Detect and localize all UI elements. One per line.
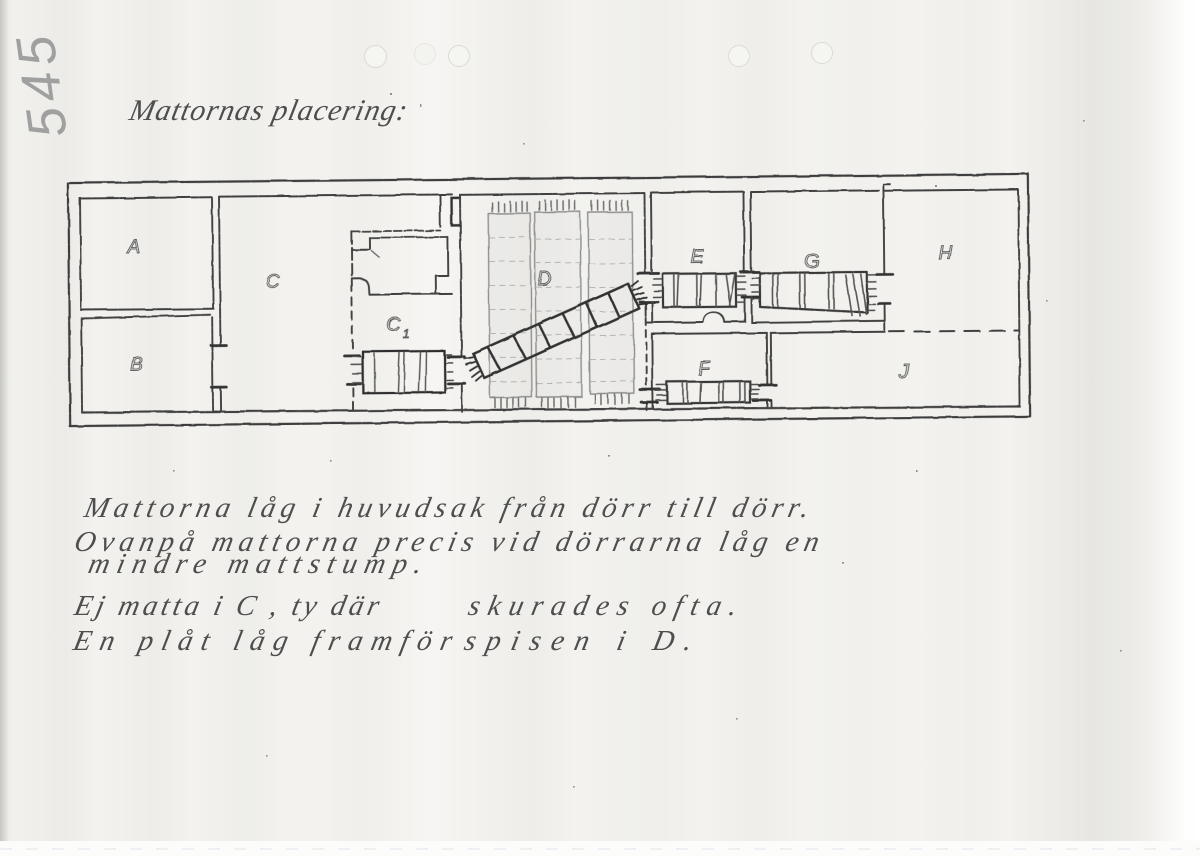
svg-text:J: J [898, 361, 910, 384]
svg-text:Mattornas placering:: Mattornas placering: [126, 93, 411, 127]
svg-text:spisen i D.: spisen i D. [462, 625, 696, 657]
svg-text:C: C [386, 314, 400, 335]
svg-text:Ej matta i C , ty där: Ej matta i C , ty där [71, 590, 383, 622]
svg-text:545: 545 [4, 26, 78, 141]
svg-text:B: B [130, 354, 143, 375]
svg-text:skurades ofta.: skurades ofta. [466, 590, 741, 622]
svg-text:A: A [126, 237, 140, 258]
svg-text:En plåt låg framför: En plåt låg framför [70, 625, 456, 657]
svg-text:H: H [938, 243, 952, 264]
svg-text:C: C [266, 272, 280, 293]
svg-text:Mattorna låg i huvudsak från d: Mattorna låg i huvudsak från dörr till d… [81, 492, 813, 524]
svg-text:G: G [805, 251, 820, 272]
svg-text:mindre mattstump.: mindre mattstump. [86, 548, 426, 580]
svg-text:F: F [698, 358, 711, 379]
svg-text:E: E [691, 246, 704, 267]
svg-text:1: 1 [402, 326, 409, 340]
